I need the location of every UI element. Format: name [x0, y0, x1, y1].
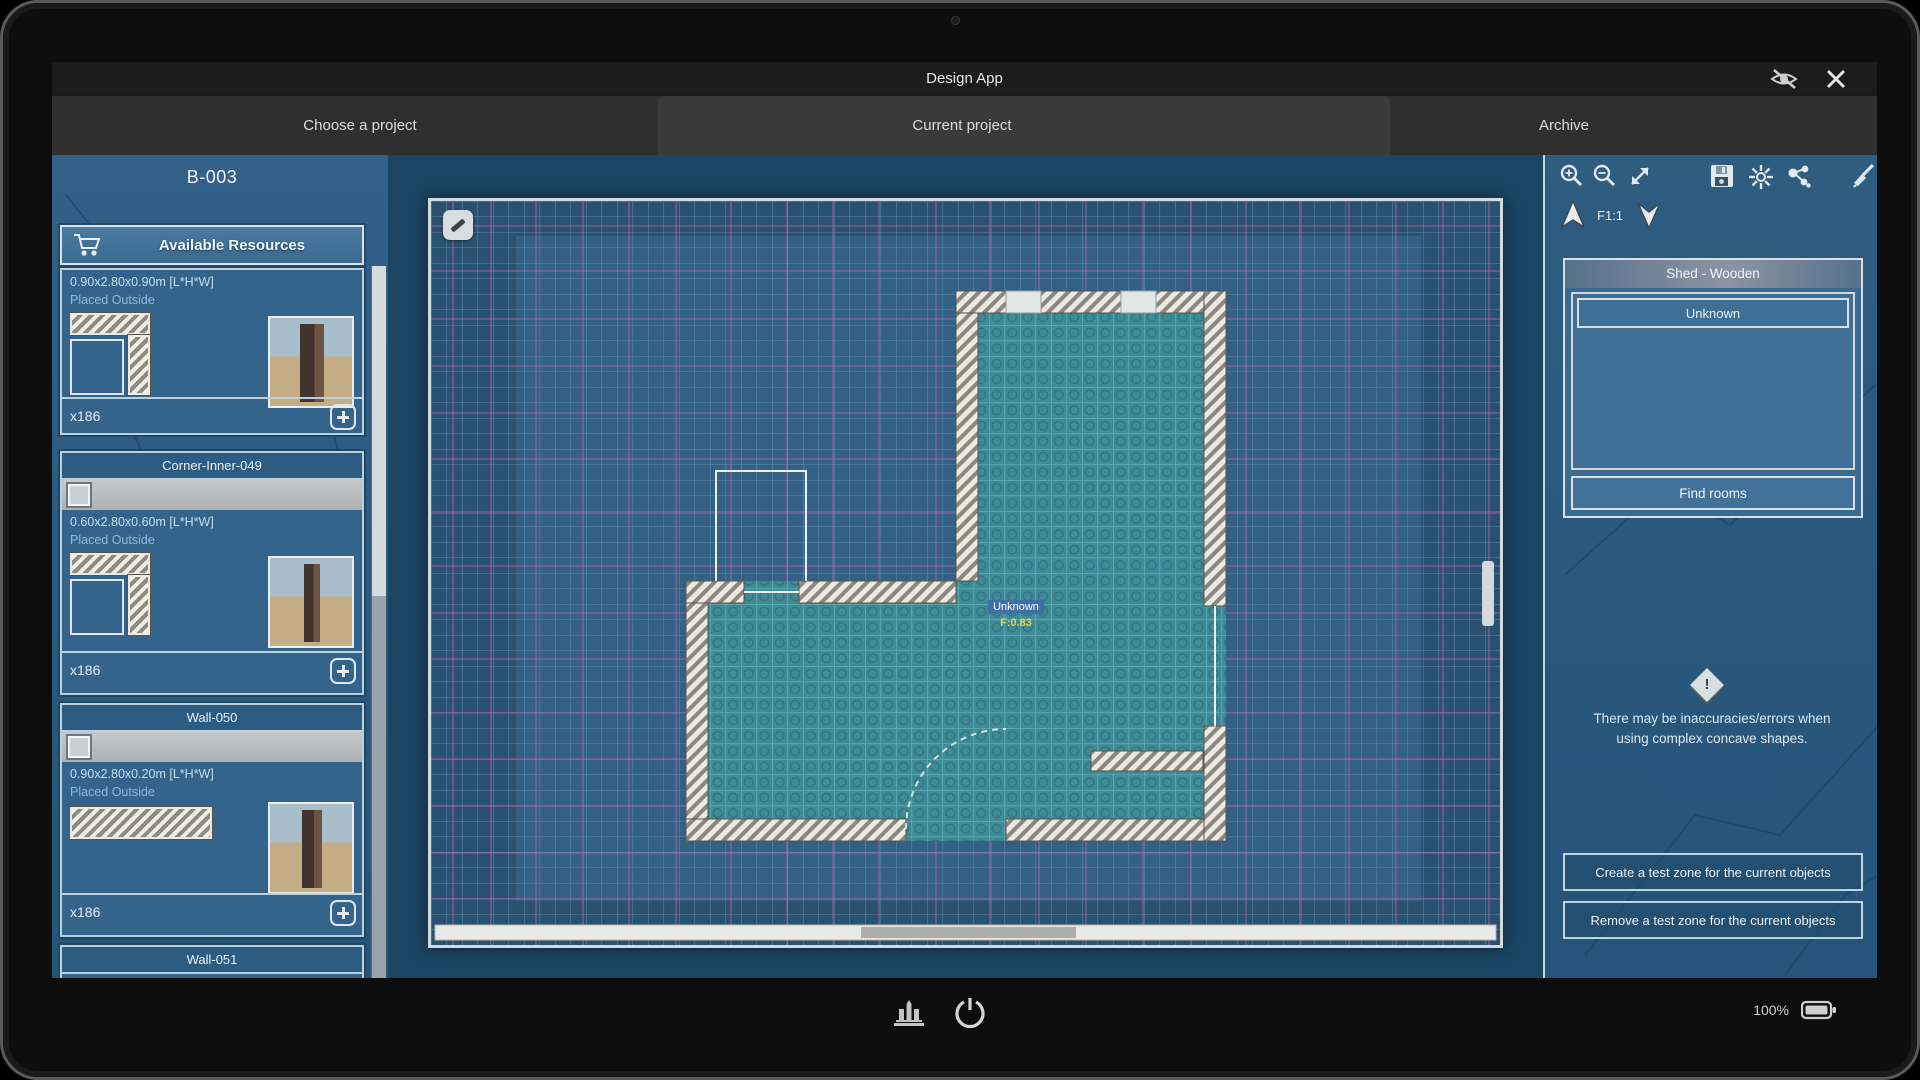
wall-pillar: [1121, 291, 1156, 313]
device-status-bar: 100%: [3, 978, 1917, 1048]
hide-eye-icon[interactable]: [1769, 67, 1799, 91]
wall-piece-icon: [70, 807, 212, 839]
rooms-list: Unknown: [1571, 292, 1855, 470]
resource-card: Corner-Inner-049 0.60x2.80x0.60m [L*H*W]…: [60, 451, 364, 695]
resource-checkbox[interactable]: [68, 484, 90, 506]
resource-placed-label: Placed Outside: [70, 785, 354, 799]
blueprint-canvas[interactable]: Unknown F:0.83: [428, 198, 1503, 948]
canvas-hscroll-thumb[interactable]: [861, 927, 1076, 938]
warning-text-line2: using complex concave shapes.: [1553, 731, 1871, 746]
battery-percent: 100%: [1753, 1002, 1789, 1018]
canvas-vscroll-thumb[interactable]: [1482, 561, 1494, 626]
close-icon[interactable]: [1825, 68, 1847, 90]
building-icon[interactable]: [891, 997, 927, 1029]
tab-bar: Choose a project Current project Archive: [52, 96, 1877, 155]
resource-dimensions: 0.90x2.80x0.20m [L*H*W]: [70, 767, 354, 781]
tab-current-project[interactable]: Current project: [912, 96, 1011, 155]
selection-label: Unknown F:0.83: [969, 597, 1063, 629]
resource-count: x186: [70, 662, 100, 678]
power-icon[interactable]: [953, 996, 987, 1030]
canvas-tool-icon[interactable]: [443, 210, 473, 240]
resource-placed-label: Placed Outside: [70, 293, 354, 307]
tab-choose-project[interactable]: Choose a project: [303, 96, 416, 155]
resources-sidebar: B-003 Available Resources 0.90x2.80x0.90…: [52, 155, 388, 978]
resource-photo: [268, 316, 354, 408]
resource-title: Corner-Inner-049: [62, 453, 362, 480]
room-item-unknown[interactable]: Unknown: [1577, 298, 1849, 328]
rooms-panel: Shed - Wooden Unknown Find rooms: [1563, 258, 1863, 518]
available-resources-header[interactable]: Available Resources: [60, 225, 364, 265]
expand-icon[interactable]: [1627, 163, 1653, 189]
active-tab-indicator: [658, 96, 1390, 155]
sidebar-scrollbar-thumb[interactable]: [372, 266, 386, 596]
warning-text-line1: There may be inaccuracies/errors when: [1553, 711, 1871, 726]
front-camera: [951, 16, 960, 25]
resource-dimensions: 0.60x2.80x0.60m [L*H*W]: [70, 515, 354, 529]
warning-icon: !: [1690, 668, 1724, 702]
floor-up-icon[interactable]: [1559, 199, 1587, 231]
resource-checkbox[interactable]: [68, 736, 90, 758]
sidebar-scrollbar[interactable]: [371, 266, 386, 978]
plus-icon[interactable]: [330, 404, 356, 430]
resource-count: x186: [70, 904, 100, 920]
wall-pillar: [1006, 291, 1041, 313]
resource-dimensions: 0.90x2.80x0.90m [L*H*W]: [70, 275, 354, 289]
project-id: B-003: [52, 167, 372, 188]
rooms-panel-header: Shed - Wooden: [1565, 260, 1861, 288]
tools-sidebar: F1:1 Shed - Wooden Unknown Find rooms ! …: [1543, 155, 1877, 978]
zoom-in-icon[interactable]: [1559, 163, 1585, 189]
corner-piece-icon: [70, 313, 150, 395]
resource-photo: [268, 556, 354, 648]
corner-piece-icon: [70, 553, 150, 635]
create-test-zone-button[interactable]: Create a test zone for the current objec…: [1563, 853, 1863, 891]
app-screen: Design App C: [52, 62, 1877, 978]
floor-label: F1:1: [1597, 208, 1623, 223]
remove-test-zone-button[interactable]: Remove a test zone for the current objec…: [1563, 901, 1863, 939]
selection-value: F:0.83: [969, 617, 1063, 629]
cart-icon: [72, 232, 102, 258]
zoom-out-icon[interactable]: [1592, 163, 1618, 189]
floor-down-icon[interactable]: [1635, 199, 1663, 231]
find-rooms-button[interactable]: Find rooms: [1571, 476, 1855, 510]
canvas-backdrop: Unknown F:0.83: [388, 155, 1543, 978]
resource-title: Wall-050: [62, 705, 362, 732]
selection-name: Unknown: [988, 600, 1044, 614]
save-icon[interactable]: [1709, 163, 1735, 189]
tablet-device: Design App C: [0, 0, 1920, 1080]
resource-title: Wall-051: [62, 947, 362, 974]
blueprint-drawing: [431, 201, 1500, 945]
graph-nodes-icon[interactable]: [1785, 163, 1813, 191]
app-title: Design App: [52, 62, 1877, 96]
title-bar: Design App: [52, 62, 1877, 96]
resource-placed-label: Placed Outside: [70, 533, 354, 547]
resource-count: x186: [70, 408, 100, 424]
available-resources-label: Available Resources: [102, 237, 362, 254]
spinner-gear-icon[interactable]: [1747, 163, 1775, 191]
plus-icon[interactable]: [330, 658, 356, 684]
brush-icon[interactable]: [1849, 163, 1877, 191]
resource-card: 0.90x2.80x0.90m [L*H*W] Placed Outside x…: [60, 268, 364, 435]
resource-photo: [268, 802, 354, 894]
resource-card: Wall-051: [60, 945, 364, 978]
resource-card: Wall-050 0.90x2.80x0.20m [L*H*W] Placed …: [60, 703, 364, 937]
battery-icon: [1801, 1000, 1837, 1020]
tab-archive[interactable]: Archive: [1539, 96, 1589, 155]
plus-icon[interactable]: [330, 900, 356, 926]
